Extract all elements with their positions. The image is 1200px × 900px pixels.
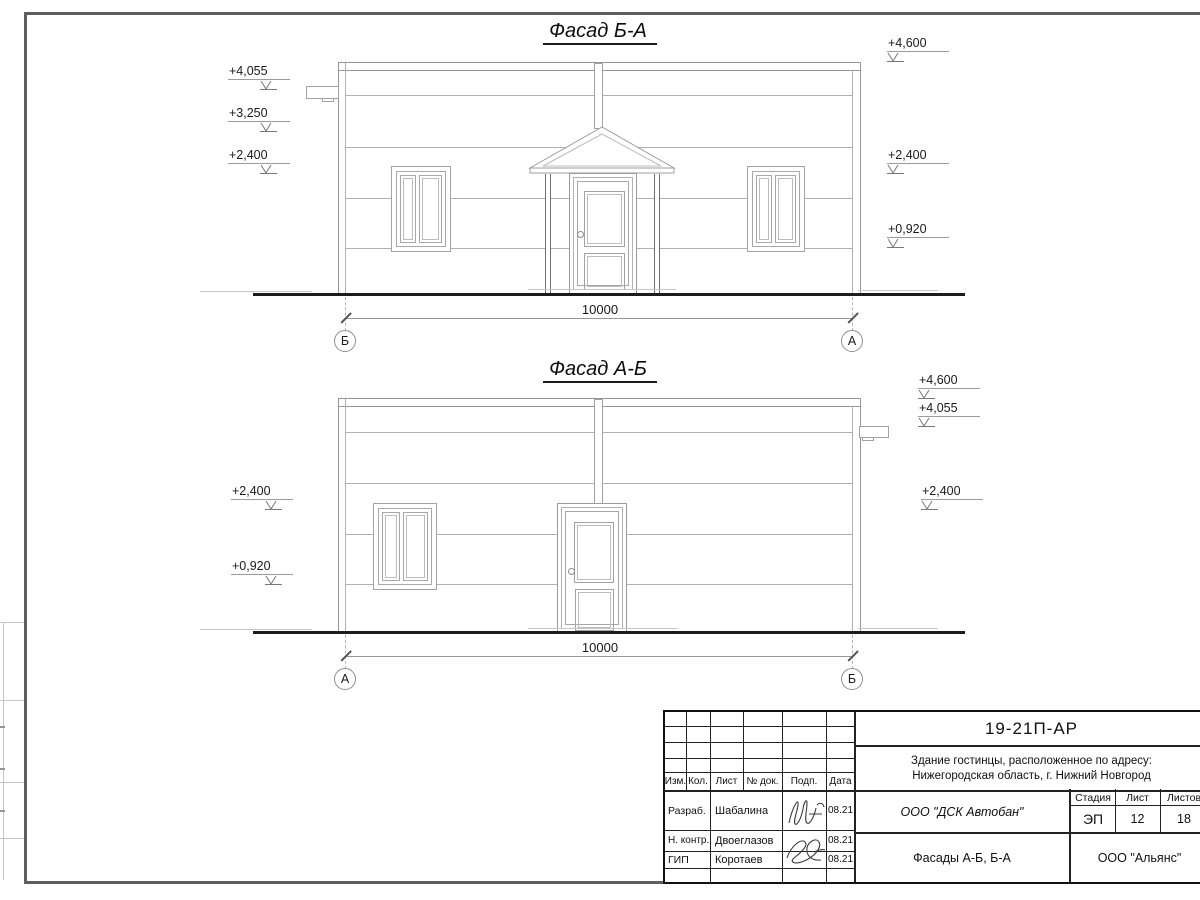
tb-row-date: 08.21 [826, 830, 855, 851]
elevation-value: +2,400 [887, 148, 949, 164]
door-knob [568, 568, 575, 575]
elevation-mark: +0,920 [887, 222, 949, 249]
apron-line [858, 628, 938, 629]
elevation-arrow-icon [260, 122, 278, 133]
extension-line [345, 297, 346, 331]
elevation-mark: +0,920 [231, 559, 293, 586]
dimension-line [345, 656, 853, 657]
porch-canopy [524, 124, 680, 176]
door-panel-inner [587, 256, 622, 287]
elevation-value: +3,250 [228, 106, 290, 122]
tb-contractor: ООО "ДСК Автобан" [855, 791, 1069, 832]
elevation-arrow-icon [918, 417, 936, 428]
window-sash-glass [406, 515, 425, 578]
tb-row-name: Коротаев [715, 851, 782, 868]
elevation-value: +4,055 [228, 64, 290, 80]
elevation-value: +4,055 [918, 401, 980, 417]
extension-line [345, 635, 346, 669]
window-sash-right [403, 512, 428, 581]
signature [781, 830, 827, 868]
window-frame [752, 171, 800, 247]
facade-2-window [373, 503, 437, 590]
elevation-mark: +3,250 [228, 106, 290, 133]
elevation-arrow-icon [921, 500, 939, 511]
facade-2-axis-left: А [334, 668, 356, 690]
elevation-value: +0,920 [887, 222, 949, 238]
tb-col-podp: Подп. [782, 772, 826, 790]
door-panel-inner [578, 592, 611, 628]
window-frame [396, 171, 446, 247]
facade-1-vent-pipe-lip [322, 98, 334, 102]
facade-2-corner-trim-left [345, 399, 346, 631]
tb-row-role: Разраб. [668, 791, 710, 830]
tb-client: ООО "Альянс" [1071, 834, 1200, 882]
tb-row-date: 08.21 [826, 791, 855, 830]
tb-row-name: Шабалина [715, 791, 782, 830]
tb-sheet-title: Фасады А-Б, Б-А [855, 834, 1069, 882]
elevation-mark: +4,600 [918, 373, 980, 400]
window-sash-left [382, 512, 400, 581]
facade-1-window-right [747, 166, 805, 252]
elevation-arrow-icon [887, 238, 905, 249]
tb-row-role: ГИП [668, 851, 710, 868]
window-sash-glass [403, 178, 413, 240]
porch-slab-line [528, 289, 676, 290]
tb-line [665, 758, 855, 759]
door-panel-inner [577, 525, 611, 580]
facade-2-title-text: Фасад А-Б [543, 358, 657, 383]
door-panel-lower [575, 589, 614, 631]
tb-row-role: Н. контр. [668, 830, 710, 851]
elevation-mark: +4,600 [887, 36, 949, 63]
elevation-mark: +2,400 [231, 484, 293, 511]
apron-line [200, 629, 312, 630]
tb-stage-label: Стадия [1071, 791, 1115, 805]
tb-address-line1: Здание гостинцы, расположенное по адресу… [911, 754, 1152, 769]
tb-address-line2: Нижегородская область, г. Нижний Новгоро… [912, 769, 1151, 784]
elevation-mark: +2,400 [228, 148, 290, 175]
tb-col-doc: № док. [743, 772, 782, 790]
window-frame [378, 508, 432, 585]
elevation-arrow-icon [265, 575, 283, 586]
facade-1-title-text: Фасад Б-А [543, 20, 657, 45]
door-slab-line [528, 628, 678, 629]
facade-2-axis-right: Б [841, 668, 863, 690]
facade-2-corner-trim-right [852, 407, 853, 631]
title-block: Изм. Кол. Лист № док. Подп. Дата 19-21П-… [663, 710, 1200, 884]
window-sash-left [400, 175, 416, 243]
tb-col-kol: Кол. [686, 772, 710, 790]
window-sash-right [775, 175, 796, 243]
window-sash-right [419, 175, 442, 243]
tb-col-list: Лист [710, 772, 743, 790]
window-sash-glass [385, 515, 397, 578]
tb-sheets-value: 18 [1160, 805, 1200, 832]
porch-column-right [654, 174, 660, 293]
facade-2-vent-pipe-lip [862, 437, 874, 441]
elevation-value: +2,400 [228, 148, 290, 164]
facade-1-corner-trim-right [852, 71, 853, 294]
facade-2-ground-line [253, 631, 965, 634]
tb-col-data: Дата [826, 772, 855, 790]
elevation-value: +4,600 [918, 373, 980, 389]
margin-text-stub [0, 726, 5, 728]
tb-col-izm: Изм. [665, 772, 686, 790]
door-panel-lower [584, 253, 625, 290]
elevation-arrow-icon [887, 164, 905, 175]
door-panel-upper [574, 522, 614, 583]
window-sash-glass [759, 178, 769, 240]
facade-2-stack [594, 399, 603, 505]
elevation-value: +2,400 [231, 484, 293, 500]
tb-stage-value: ЭП [1071, 805, 1115, 832]
elevation-arrow-icon [918, 389, 936, 400]
door-knob [577, 231, 584, 238]
elevation-arrow-icon [887, 52, 905, 63]
tb-line [665, 726, 855, 727]
door-panel-upper [584, 191, 625, 247]
facade-1-title: Фасад Б-А [500, 20, 700, 43]
elevation-mark: +2,400 [921, 484, 983, 511]
facade-2-door [557, 503, 627, 633]
elevation-arrow-icon [265, 500, 283, 511]
door-panel-inner [587, 194, 622, 244]
drawing-sheet: Фасад Б-А [0, 0, 1200, 900]
apron-line [858, 290, 938, 291]
facade-1-corner-trim-left [345, 63, 346, 294]
frame-left [24, 12, 27, 884]
facade-1-axis-right: А [841, 330, 863, 352]
dimension-line [345, 318, 853, 319]
tb-row-name: Двоеглазов [715, 830, 782, 851]
tb-doc-number: 19-21П-АР [855, 712, 1200, 745]
tb-sheet-value: 12 [1115, 805, 1160, 832]
elevation-arrow-icon [260, 164, 278, 175]
margin-text-stub [0, 810, 5, 812]
facade-2-dimension-label: 10000 [545, 640, 655, 655]
facade-1-stack [594, 63, 603, 129]
tb-line [665, 868, 855, 869]
tb-address: Здание гостинцы, расположенное по адресу… [855, 747, 1200, 790]
elevation-arrow-icon [260, 80, 278, 91]
facade-1-window-left [391, 166, 451, 252]
facade-1-door [569, 173, 637, 294]
elevation-value: +4,600 [887, 36, 949, 52]
facade-1-axis-left: Б [334, 330, 356, 352]
signature [783, 793, 826, 830]
tb-row-date: 08.21 [826, 851, 855, 868]
tb-line [665, 742, 855, 743]
elevation-mark: +4,055 [228, 64, 290, 91]
elevation-value: +0,920 [231, 559, 293, 575]
extension-line [852, 297, 853, 331]
margin-box-line [3, 622, 4, 880]
tb-sheet-label: Лист [1115, 791, 1160, 805]
facade-1-dimension-label: 10000 [545, 302, 655, 317]
extension-line [852, 635, 853, 669]
facade-2-title: Фасад А-Б [500, 358, 700, 381]
window-sash-glass [778, 178, 793, 240]
tb-sheets-label: Листов [1160, 791, 1200, 805]
apron-line [200, 291, 312, 292]
elevation-value: +2,400 [921, 484, 983, 500]
facade-1-ground-line [253, 293, 965, 296]
porch-column-left [545, 174, 551, 293]
frame-top [24, 12, 1200, 15]
window-sash-left [756, 175, 772, 243]
window-sash-glass [422, 178, 439, 240]
margin-text-stub [0, 768, 5, 770]
tb-line [710, 712, 711, 882]
elevation-mark: +2,400 [887, 148, 949, 175]
elevation-mark: +4,055 [918, 401, 980, 428]
